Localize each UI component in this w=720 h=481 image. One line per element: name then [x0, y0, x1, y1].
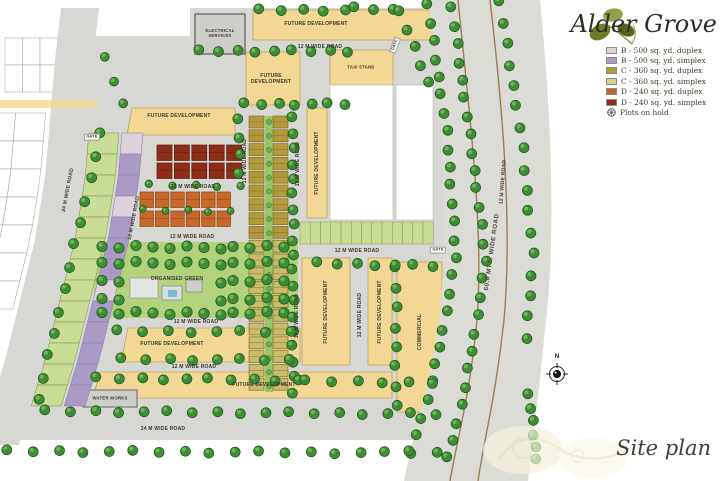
legend-item: Plots on hold	[606, 107, 706, 117]
legend-item: C - 360 sq. yd. duplex	[606, 66, 706, 76]
swimming-pool	[168, 290, 177, 297]
legend-swatch-c-duplex	[606, 67, 617, 74]
legend-label: C - 360 sq. yd. duplex	[621, 66, 702, 75]
label-road-12m: 12 M WIDE ROAD	[295, 142, 301, 186]
label-future-development: FUTURE DEVELOPMENT	[377, 280, 383, 343]
legend-item: B - 500 sq. yd. simplex	[606, 55, 706, 65]
legend-item: C - 360 sq. yd. simplex	[606, 76, 706, 86]
legend-swatch-c-simplex	[606, 78, 617, 85]
label-road-12m: 12 M WIDE ROAD	[171, 184, 215, 190]
label-organised-green: ORGANISED GREEN	[151, 276, 203, 282]
legend-label: C - 360 sq. yd. simplex	[621, 77, 706, 86]
label-road-12m: 12 M WIDE ROAD	[294, 294, 300, 338]
white-block-center	[330, 85, 393, 220]
label-road-12m: 12 M WIDE ROAD	[174, 319, 218, 325]
legend-item: D - 240 sq. yd. simplex	[606, 97, 706, 107]
white-block-right	[396, 85, 433, 220]
legend-item: B - 500 sq. yd. duplex	[606, 45, 706, 55]
page-title: Alder Grove	[570, 10, 717, 38]
label-gate: GATE	[84, 134, 100, 141]
label-water-works: WATER WORKS	[92, 395, 127, 400]
label-road-12m: 12 M WIDE ROAD	[335, 248, 379, 254]
site-plan-caption: Site plan	[616, 436, 711, 460]
label-road-12m: 12 M WIDE ROAD	[242, 139, 248, 183]
west-boundary-band	[0, 100, 97, 108]
legend-label: B - 500 sq. yd. simplex	[621, 56, 706, 65]
label-future-development: FUTURE DEVELOPMENT	[284, 21, 347, 27]
compass-north-label: N	[542, 353, 572, 360]
legend-item: D - 240 sq. yd. duplex	[606, 87, 706, 97]
legend-swatch-d-duplex	[606, 88, 617, 95]
housing-columns-c-type	[249, 116, 288, 392]
compass: N	[542, 353, 572, 395]
label-future-development: FUTURE DEVELOPMENT	[147, 113, 210, 119]
label-electrical-services: ELECTRICAL SERVICES	[203, 28, 237, 38]
label-road-12m: 12 M WIDE ROAD	[172, 364, 216, 370]
legend-swatch-d-simplex	[606, 99, 617, 106]
alder-grove-site-plan: FUTURE DEVELOPMENT FUTURE DEVELOPMENT FU…	[0, 0, 720, 481]
plots-on-hold-icon	[607, 108, 616, 117]
label-gate: GATE	[430, 247, 446, 254]
label-road-24m: 24 M WIDE ROAD	[141, 426, 185, 432]
label-future-development: FUTURE DEVELOPMENT	[314, 131, 320, 194]
label-road-12m: 12 M WIDE ROAD	[357, 293, 363, 337]
legend-label: D - 240 sq. yd. duplex	[621, 87, 703, 96]
label-road-12m: 12 M WIDE ROAD	[170, 234, 214, 240]
label-commercial: COMMERCIAL	[417, 314, 423, 350]
label-taxi-stand: TAXI STAND	[347, 64, 374, 69]
compass-icon	[542, 360, 572, 390]
legend-label: Plots on hold	[620, 108, 669, 117]
legend-label: B - 500 sq. yd. duplex	[621, 46, 702, 55]
label-future-development: FUTURE DEVELOPMENT	[140, 341, 203, 347]
label-future-development: FUTURE DEVELOPMENT	[323, 280, 329, 343]
label-future-development: FUTURE DEVELOPMENT	[246, 73, 296, 85]
legend-label: D - 240 sq. yd. simplex	[621, 98, 706, 107]
legend-swatch-b-simplex	[606, 57, 617, 64]
label-road-12m: 12 M WIDE ROAD	[298, 44, 342, 50]
label-future-development: FUTURE DEVELOPMENT	[232, 382, 295, 388]
legend-swatch-b-duplex	[606, 47, 617, 54]
legend: B - 500 sq. yd. duplex B - 500 sq. yd. s…	[606, 45, 706, 118]
